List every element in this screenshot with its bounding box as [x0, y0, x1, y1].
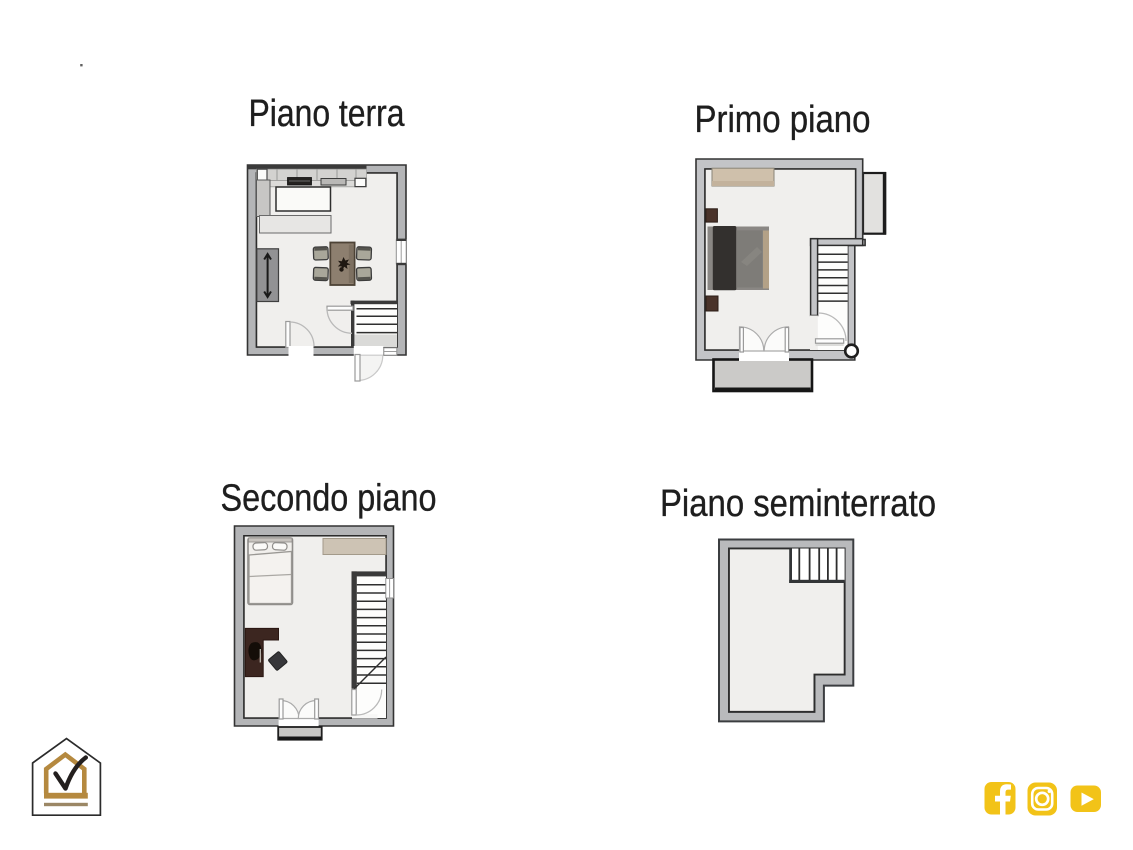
svg-text:Secondo piano: Secondo piano	[221, 478, 437, 520]
svg-text:Piano terra: Piano terra	[249, 93, 406, 135]
svg-text:Piano seminterrato: Piano seminterrato	[660, 483, 936, 525]
svg-text:Primo piano: Primo piano	[695, 99, 871, 141]
